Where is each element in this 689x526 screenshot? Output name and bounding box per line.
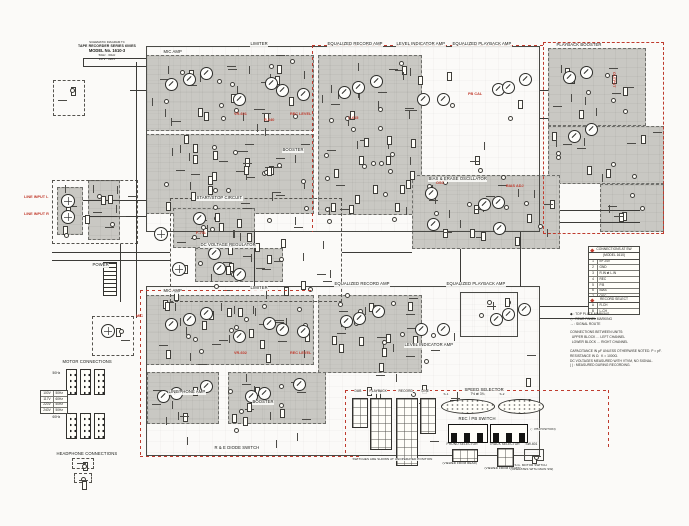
- table-row-value: R.IN ⇄ L.IN: [598, 271, 639, 276]
- component-ref-label: REC LEVEL: [290, 113, 311, 117]
- component-ref-label: F-701: [196, 232, 206, 236]
- red-labels-layer: LINE INPUT LLINE INPUT RMICVR-601REC LEV…: [0, 0, 689, 526]
- component-ref-label: OUTPUT: [611, 72, 615, 88]
- table-row-voltage: 100V: [41, 391, 54, 396]
- component-ref-label: C-615: [348, 117, 358, 121]
- table-row-number: A: [589, 303, 598, 308]
- component-ref-label: LINE INPUT L: [24, 196, 48, 200]
- table-row-number: 2: [589, 265, 598, 270]
- component-ref-label: PB CAL: [468, 93, 482, 97]
- table-row-number: 4: [589, 277, 598, 282]
- component-ref-label: VR-602: [234, 352, 247, 356]
- title-block: SCHEMATIC DIAGRAM TC TAPE RECORDER SERIE…: [64, 40, 150, 61]
- table-row-value: P.B: [598, 283, 639, 288]
- table-row-frequency: 50Hz: [54, 408, 67, 413]
- table-row-value: GND: [598, 265, 639, 270]
- component-ref-label: BIAS ADJ: [506, 185, 524, 189]
- notes-block: ◆ : TOP PLATE MARKING◇ : REAR PANEL MARK…: [570, 312, 682, 368]
- table-row-number: 6: [589, 289, 598, 294]
- component-ref-label: VR-601: [234, 113, 247, 117]
- component-ref-label: MIC: [136, 315, 143, 319]
- table-row-voltage: 240V: [41, 408, 54, 413]
- component-ref-label: LINE INPUT R: [24, 213, 49, 217]
- table-row-value: R-CH: [598, 303, 639, 308]
- title-voltage: 117V · 220V: [64, 57, 150, 61]
- table-row-frequency: 50Hz: [54, 391, 67, 396]
- schematic-canvas: MIC AMPLIMITEREQUALIZED RECORD AMPLEVEL …: [0, 0, 689, 526]
- connections-table-subtitle: (MODEL 1610): [589, 253, 639, 259]
- motor-voltage-table: 100V 50Hz 117V 60Hz 220V 50Hz 240V 50Hz: [40, 390, 68, 414]
- table-row-number: 1: [589, 260, 598, 265]
- component-ref-label: OSC: [436, 182, 444, 186]
- note-line: ( ) : MEASURED DURING RECORDING.: [570, 363, 682, 368]
- table-row-frequency: 50Hz: [54, 403, 67, 408]
- table-row: 240V 50Hz: [41, 408, 67, 413]
- table-row-value: REC: [598, 277, 639, 282]
- component-ref-label: R-640: [264, 119, 274, 123]
- table-row-voltage: 117V: [41, 397, 54, 402]
- motor-voltage-table-rows: 100V 50Hz 117V 60Hz 220V 50Hz 240V 50Hz: [41, 391, 67, 413]
- component-ref-label: REC LEVEL: [290, 352, 311, 356]
- table-row-frequency: 60Hz: [54, 397, 67, 402]
- table-row-voltage: 220V: [41, 403, 54, 408]
- notes-lines: ◆ : TOP PLATE MARKING◇ : REAR PANEL MARK…: [570, 312, 682, 368]
- table-row-number: 3: [589, 271, 598, 276]
- table-row-number: 5: [589, 283, 598, 288]
- record-select-table-title: RECORD SELECT: [589, 297, 639, 303]
- table-row-value: B+ 24V: [598, 260, 639, 265]
- table-row-value: BIAS: [598, 289, 639, 294]
